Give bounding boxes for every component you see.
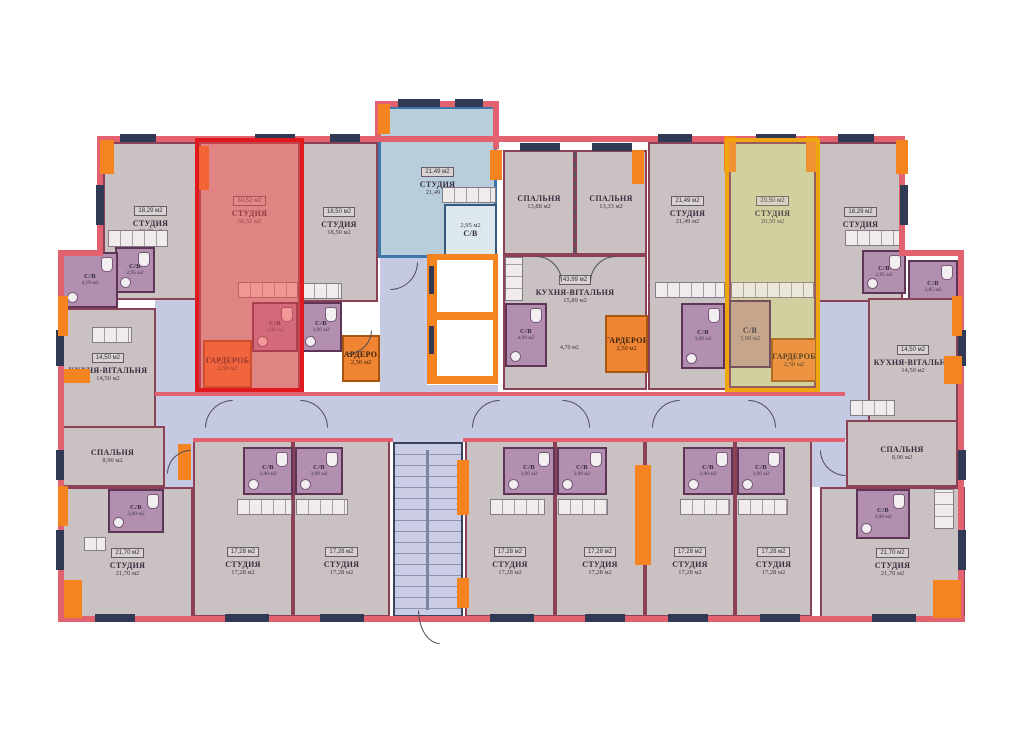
area-badge: 18,29 м2 [134,206,166,216]
window [490,614,534,622]
area-badge: 14,50 м2 [92,353,124,363]
wall-segment-orange [58,296,68,336]
kitchenette [108,230,168,247]
elevator-shaft-2 [437,320,493,376]
window [900,185,908,225]
bedroom-divider [574,152,576,253]
room-wardrobe-center[interactable]: ГАРДЕРОБ 2,50 м2 [605,315,648,373]
kitchenette [490,499,545,515]
window [455,99,483,107]
area-badge: 18,50 м2 [323,207,355,217]
kitchenette [302,283,342,299]
kitchenette [738,499,788,515]
corridor-right [818,300,868,440]
kitchenette [296,499,348,515]
kitchenette [84,537,106,551]
area-badge: 17,28 м2 [584,547,616,557]
wall-segment-orange [944,356,962,384]
area-badge: 17,28 м2 [674,547,706,557]
window [320,614,364,622]
room-wc-center: С/В 4,99 м2 [505,303,547,367]
area-badge: 17,28 м2 [494,547,526,557]
wall-segment-orange [896,140,908,174]
wall-outer [493,101,499,149]
wall-segment-orange [490,150,502,180]
wall-segment-orange [632,150,644,184]
kitchenette [934,489,954,529]
wall-corridor-bottom [193,438,393,442]
kitchenette [237,499,292,515]
floor-plan: 18,29 м2 СТУДИЯ 18,29 м2 С/В 2,95 м2 30,… [0,0,1024,732]
room-wc-bottom-3: С/В 3,00 м2 [503,447,555,495]
window [520,143,560,151]
room-bedroom-center-1: СПАЛЬНЯ 13,88 м2 [503,150,575,255]
room-bedroom-right: СПАЛЬНЯ 8,90 м2 [846,420,958,487]
corridor-main [155,395,845,442]
area-badge: 17,28 м2 [227,547,259,557]
room-wc-bottom-1: С/В 3,00 м2 [243,447,293,495]
window [668,614,708,622]
wall-segment-orange [100,140,114,174]
window [56,450,64,480]
window [330,134,360,142]
kitchenette [680,499,730,515]
highlight-unit-yellow[interactable] [725,138,820,392]
corridor-left [155,300,197,397]
room-wc-top-2: С/В 3,00 м2 [300,302,342,352]
kitchenette [655,282,725,298]
room-studio-top-2: 18,50 м2 СТУДИЯ 18,50 м2 [300,142,378,302]
window [585,614,625,622]
kitchenette [505,257,523,301]
window [120,134,156,142]
wall-segment-orange [933,580,961,618]
room-wc-blue: 2,95 м2 С/В [444,204,497,256]
area-badge: 21,70 м2 [111,548,143,558]
wall-segment-orange [952,296,962,336]
room-wc-bottom-6: С/В 3,00 м2 [737,447,785,495]
window [225,614,269,622]
room-wc-top-3: С/В 3,00 м2 [681,303,725,369]
room-wc-bottom-4: С/В 3,00 м2 [557,447,607,495]
door-arc-entry [418,610,440,644]
window [958,530,966,570]
kitchenette [442,187,496,203]
room-wc-left: С/В 4,19 м2 [62,252,118,308]
window [56,530,64,570]
area-badge: 18,29 м2 [844,207,876,217]
window [95,614,135,622]
room-wc-top-1: С/В 2,95 м2 [115,247,155,293]
area-badge: 17,28 м2 [325,547,357,557]
elevator-shaft-1 [437,260,493,312]
highlight-unit-red[interactable] [195,138,304,392]
window [398,99,440,107]
room-wc-bottom-2: С/В 3,00 м2 [295,447,343,495]
stair-divider [426,450,429,610]
area-badge: 43,99 м2 [559,275,591,285]
room-wc-bottom-5: С/В 3,00 м2 [683,447,733,495]
elevator-door-1 [429,266,434,294]
elevator-door-2 [429,326,434,354]
room-wc-top-4: С/В 2,95 м2 [862,250,906,294]
kitchenette [845,230,901,246]
room-wc-bottom-left: С/В 3,00 м2 [108,489,164,533]
window [592,143,632,151]
wall-segment-orange [457,578,469,608]
wall-outer [903,250,961,256]
window [96,185,104,225]
room-wc-bottom-right: С/В 3,00 м2 [856,489,910,539]
window [958,450,966,480]
window [872,614,916,622]
window [838,134,874,142]
area-badge: 21,49 м2 [421,167,453,177]
wall-corridor-top [155,392,845,396]
wall-outer [58,250,103,256]
room-bedroom-left: СПАЛЬНЯ 8,90 м2 [60,426,165,487]
kitchenette [92,327,132,343]
window [760,614,800,622]
area-badge: 21,49 м2 [671,196,703,206]
kitchenette [850,400,895,416]
wall-segment-orange [58,486,68,526]
wall-segment-orange [378,104,390,134]
room-kitchen-left: 14,50 м2 КУХНЯ-ВІТАЛЬНЯ 14,50 м2 [60,308,156,428]
wall-segment-orange [64,580,82,618]
hall-area-label: 4,70 м2 [560,345,579,351]
kitchenette [558,499,608,515]
window [658,134,692,142]
wall-segment-orange [64,369,90,383]
area-badge: 17,28 м2 [757,547,789,557]
wall-corridor-bottom [463,438,845,442]
area-badge: 14,50 м2 [897,345,929,355]
area-badge: 21,70 м2 [876,548,908,558]
wall-segment-orange [457,460,469,515]
wall-segment-orange [635,465,651,565]
